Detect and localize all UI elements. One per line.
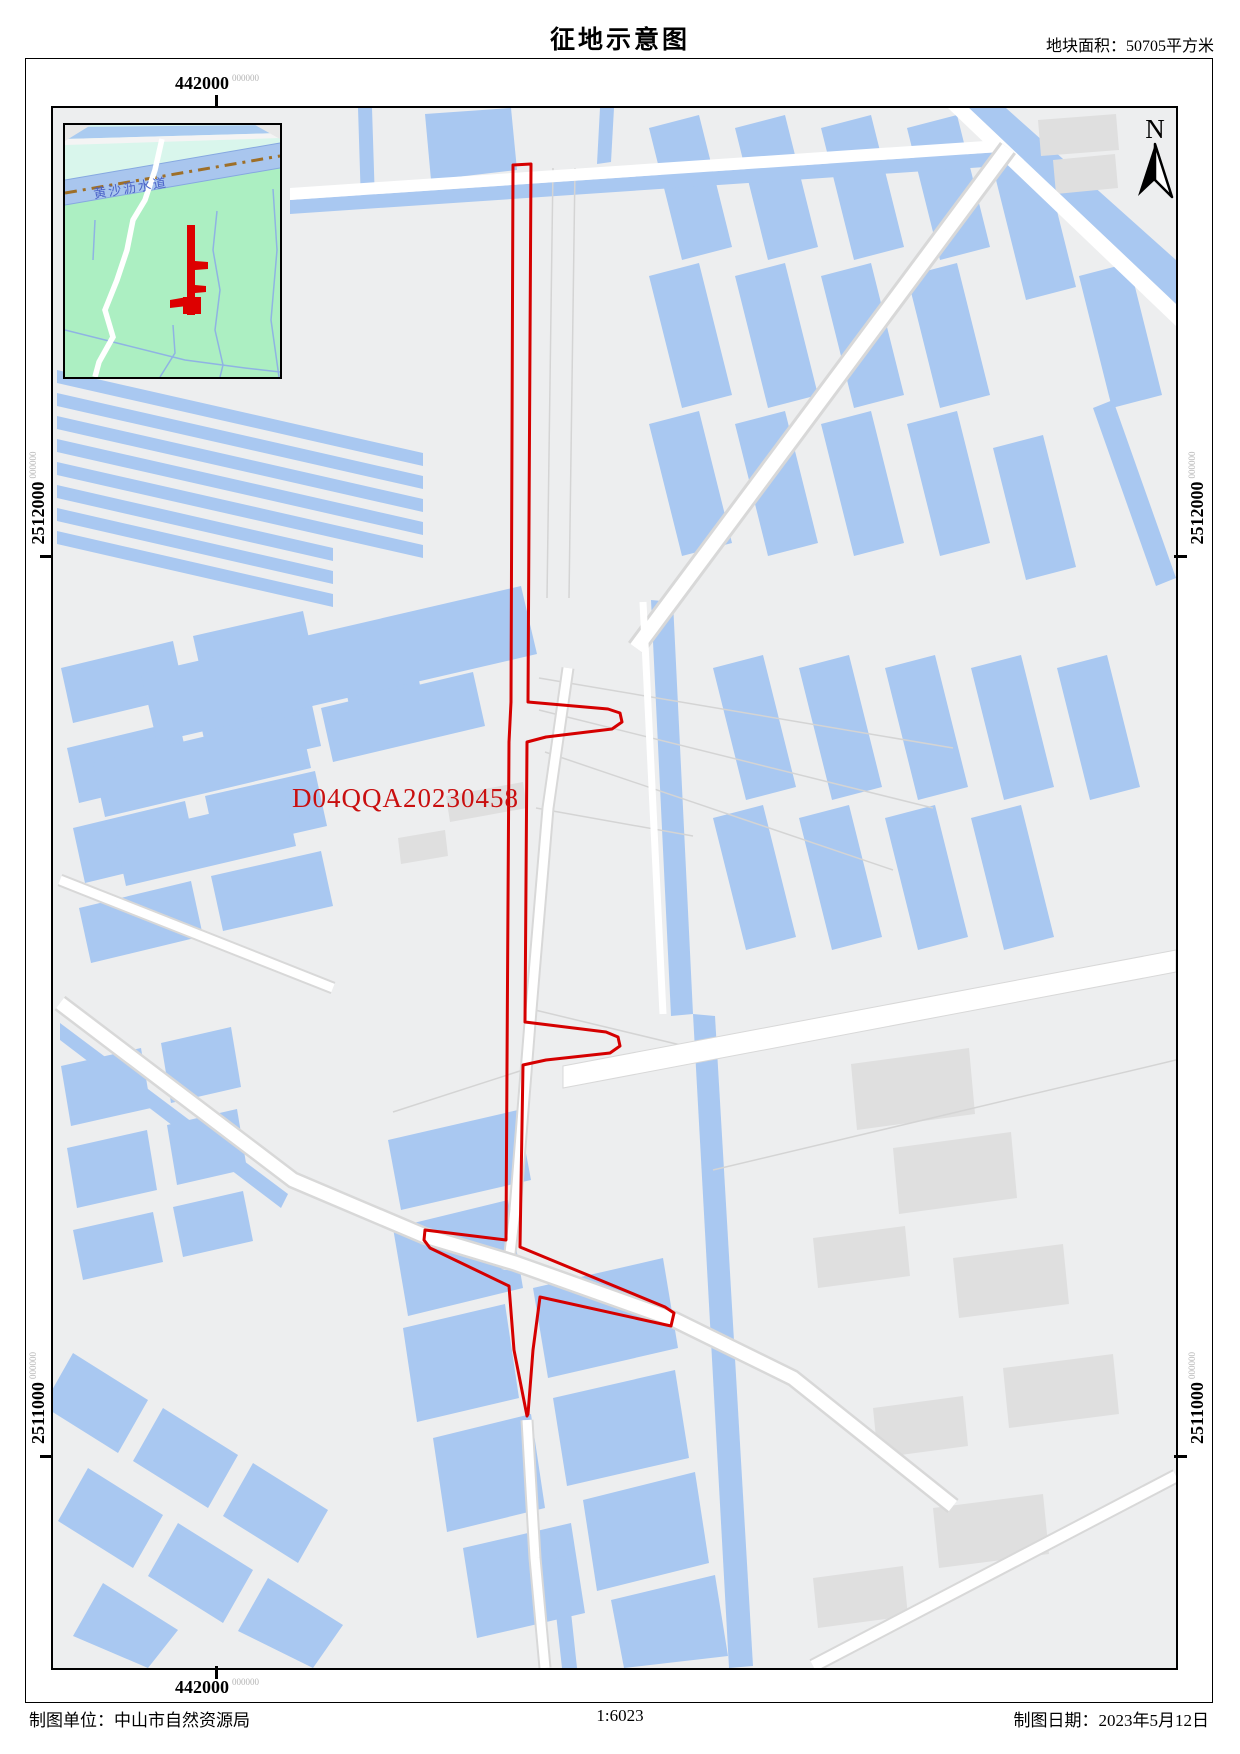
inset-graphics: 黄沙沥水道 (65, 125, 280, 377)
inset-locator-map: 黄沙沥水道 (63, 123, 282, 379)
map-sheet: 征地示意图 地块面积：50705平方米 (0, 0, 1240, 1754)
parcel-id-label: D04QQA20230458 (292, 783, 519, 814)
grid-label-northing-left-upper: 2512000000000 (29, 452, 47, 545)
grid-label-easting-top: 442000000000 (175, 74, 259, 92)
grid-tick-right-lower (1174, 1455, 1187, 1458)
footer-date: 制图日期：2023年5月12日 (1014, 1706, 1210, 1731)
grid-tick-top (215, 95, 218, 108)
grid-tick-left-lower (40, 1455, 53, 1458)
north-label: N (1145, 114, 1165, 144)
grid-tick-right-upper (1174, 555, 1187, 558)
grid-tick-left-upper (40, 555, 53, 558)
grid-label-northing-right-upper: 2512000000000 (1188, 452, 1206, 545)
grid-label-northing-right-lower: 2511000000000 (1188, 1352, 1206, 1444)
grid-label-easting-bottom: 442000000000 (175, 1678, 259, 1696)
plot-area-label: 地块面积：50705平方米 (1046, 32, 1214, 56)
grid-label-northing-left-lower: 2511000000000 (29, 1352, 47, 1444)
